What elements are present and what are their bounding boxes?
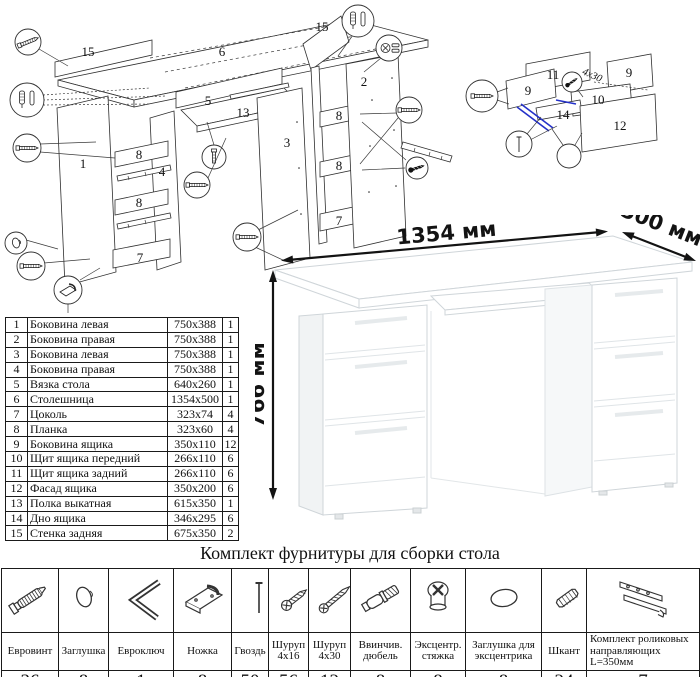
drawer-exploded-group: 11 9 9 10 14 12 4x30 [466,52,657,168]
part-number-label: 8 [336,158,343,173]
part-qty-cell: 6 [223,511,239,526]
part-size-cell: 323x60 [168,422,223,437]
hardware-icon-cell [269,569,309,633]
part-num-cell: 3 [6,347,28,362]
part-size-cell: 346x295 [168,511,223,526]
width-dimension-label: 1354 мм [395,217,497,250]
hardware-name-cell: Шкант [542,633,587,671]
table-row: 7Цоколь323x744 [6,407,239,422]
table-row: 36818505612888247 [2,670,700,677]
hardware-icon-cell [2,569,59,633]
parts-list-table: 1Боковина левая750x38812Боковина правая7… [5,317,239,541]
hardware-name-cell: Эксцентр. стяжка [411,633,466,671]
table-row: 6Столешница1354x5001 [6,392,239,407]
part-size-cell: 750x388 [168,362,223,377]
screw-size-note: 4x30 [580,67,604,86]
table-row: 15Стенка задняя675x3502 [6,526,239,541]
height-dimension-label: 766 мм [255,342,269,427]
hardware-qty-cell: 12 [309,670,351,677]
part-num-cell: 13 [6,496,28,511]
cam-lock-icon [411,614,465,631]
hardware-qty-cell: 7 [587,670,700,677]
part-name-cell: Дно ящика [28,511,168,526]
hardware-kit-table: ЕвровинтЗаглушкаЕвроключНожкаГвоздьШуруп… [1,568,700,677]
part-number-label: 9 [626,65,633,80]
part-num-cell: 10 [6,452,28,467]
part-num-cell: 14 [6,511,28,526]
hardware-icon-cell [542,569,587,633]
part-num-cell: 9 [6,437,28,452]
part-qty-cell: 6 [223,452,239,467]
hardware-name-cell: Ввинчив. дюбель [351,633,411,671]
part-number-label: 11 [547,67,560,82]
part-number-label: 8 [136,147,143,162]
hexkey-icon [114,614,168,631]
part-num-cell: 4 [6,362,28,377]
part-num-cell: 12 [6,481,28,496]
hardware-qty-cell: 36 [2,670,59,677]
part-size-cell: 750x388 [168,332,223,347]
part-qty-cell: 4 [223,407,239,422]
part-size-cell: 750x388 [168,347,223,362]
hardware-name-cell: Заглушка [59,633,109,671]
euroscrew-icon [186,183,208,187]
part-name-cell: Стенка задняя [28,526,168,541]
part-num-cell: 11 [6,466,28,481]
part-number-label: 7 [137,250,144,265]
cam-cap-icon [477,614,531,631]
hardware-icon-cell [174,569,232,633]
part-name-cell: Цоколь [28,407,168,422]
part-number-label: 9 [525,83,532,98]
part-num-cell: 5 [6,377,28,392]
hardware-name-cell: Шуруп 4x16 [269,633,309,671]
hardware-qty-cell: 8 [466,670,542,677]
table-row: 11Щит ящика задний266x1106 [6,466,239,481]
euroscrew-icon [471,94,493,98]
hardware-qty-cell: 8 [351,670,411,677]
part-qty-cell: 2 [223,526,239,541]
table-row: 9Боковина ящика350x11012 [6,437,239,452]
table-row: 10Щит ящика передний266x1106 [6,452,239,467]
part-name-cell: Боковина правая [28,332,168,347]
table-row: 3Боковина левая750x3881 [6,347,239,362]
screw-short-icon [269,614,309,631]
part-name-cell: Боковина ящика [28,437,168,452]
part-qty-cell: 4 [223,422,239,437]
part-qty-cell: 1 [223,362,239,377]
part-size-cell: 350x200 [168,481,223,496]
hardware-qty-cell: 8 [174,670,232,677]
part-qty-cell: 1 [223,496,239,511]
part-name-cell: Боковина левая [28,347,168,362]
hardware-name-cell: Евровинт [2,633,59,671]
part-number-label: 2 [361,74,368,89]
part-qty-cell: 1 [223,377,239,392]
part-number-label: 15 [82,44,95,59]
hardware-icon-cell [587,569,700,633]
table-row: 5Вязка стола640x2601 [6,377,239,392]
table-row: 13Полка выкатная615x3501 [6,496,239,511]
part-size-cell: 323x74 [168,407,223,422]
part-name-cell: Полка выкатная [28,496,168,511]
part-size-cell: 750x388 [168,318,223,333]
hardware-icon-cell [232,569,269,633]
hardware-name-cell: Ножка [174,633,232,671]
part-name-cell: Фасад ящика [28,481,168,496]
hardware-name-cell: Гвоздь [232,633,269,671]
part-size-cell: 675x350 [168,526,223,541]
part-number-label: 1 [80,156,87,171]
part-number-label: 15 [316,19,329,34]
part-size-cell: 266x110 [168,466,223,481]
part-num-cell: 15 [6,526,28,541]
part-size-cell: 615x350 [168,496,223,511]
hardware-qty-cell: 1 [109,670,174,677]
hardware-name-cell: Комплект роликовых направляющих L=350мм [587,633,700,671]
part-num-cell: 8 [6,422,28,437]
part-size-cell: 350x110 [168,437,223,452]
hardware-qty-cell: 8 [59,670,109,677]
part-num-cell: 2 [6,332,28,347]
part-num-cell: 6 [6,392,28,407]
table-row [2,569,700,633]
part-qty-cell: 12 [223,437,239,452]
screw-long-icon [309,614,351,631]
part-qty-cell: 1 [223,318,239,333]
hardware-name-cell: Евроключ [109,633,174,671]
part-name-cell: Боковина левая [28,318,168,333]
table-row: ЕвровинтЗаглушкаЕвроключНожкаГвоздьШуруп… [2,633,700,671]
hardware-qty-cell: 50 [232,670,269,677]
table-row: 12Фасад ящика350x2006 [6,481,239,496]
table-row: 2Боковина правая750x3881 [6,332,239,347]
hardware-qty-cell: 8 [411,670,466,677]
part-name-cell: Щит ящика задний [28,466,168,481]
table-row: 8Планка323x604 [6,422,239,437]
part-qty-cell: 6 [223,481,239,496]
part-size-cell: 640x260 [168,377,223,392]
part-number-label: 3 [284,135,291,150]
euroscrew-icon [3,614,57,631]
part-number-label: 5 [205,93,212,108]
euroscrew-icon [20,264,42,268]
part-num-cell: 1 [6,318,28,333]
assembled-desk-drawing: 1354 мм 500 мм 766 мм [255,215,700,545]
hardware-icon-cell [109,569,174,633]
table-row: 1Боковина левая750x3881 [6,318,239,333]
hardware-icon-cell [309,569,351,633]
dowel-screw-icon [354,614,408,631]
part-name-cell: Столешница [28,392,168,407]
hardware-qty-cell: 24 [542,670,587,677]
part-qty-cell: 1 [223,332,239,347]
hardware-name-cell: Заглушка для эксцентрика [466,633,542,671]
drawer-slide-icon [616,614,670,631]
part-number-label: 14 [557,107,571,122]
table-row: 4Боковина правая750x3881 [6,362,239,377]
part-number-label: 10 [592,92,605,107]
nail-icon [232,614,269,631]
part-qty-cell: 1 [223,392,239,407]
part-number-label: 8 [136,195,143,210]
part-qty-cell: 1 [223,347,239,362]
part-num-cell: 7 [6,407,28,422]
euroscrew-icon [398,108,420,112]
part-number-label: 12 [614,118,627,133]
assembly-instruction-page: 15 6 15 5 13 1 8 4 8 7 3 2 8 8 7 [0,0,700,677]
part-number-label: 4 [159,164,166,179]
hardware-icon-cell [59,569,109,633]
desk-body [275,236,692,519]
hardware-table-body: ЕвровинтЗаглушкаЕвроключНожкаГвоздьШуруп… [2,569,700,677]
hardware-name-cell: Шуруп 4x30 [309,633,351,671]
part-size-cell: 266x110 [168,452,223,467]
hardware-icon-cell [466,569,542,633]
part-name-cell: Щит ящика передний [28,452,168,467]
part-name-cell: Планка [28,422,168,437]
part-qty-cell: 6 [223,466,239,481]
part-name-cell: Вязка стола [28,377,168,392]
hardware-icon-cell [411,569,466,633]
hardware-qty-cell: 56 [269,670,309,677]
cap-icon [59,614,109,631]
part-size-cell: 1354x500 [168,392,223,407]
wood-dowel-icon [542,614,587,631]
part-number-label: 6 [219,44,226,59]
hardware-kit-title: Комплект фурнитуры для сборки стола [0,543,700,564]
part-number-label: 8 [336,108,343,123]
parts-table-body: 1Боковина левая750x38812Боковина правая7… [6,318,239,541]
table-row: 14Дно ящика346x2956 [6,511,239,526]
hardware-icon-cell [351,569,411,633]
part-number-label: 13 [237,105,250,120]
euroscrew-icon [16,146,38,150]
part-name-cell: Боковина правая [28,362,168,377]
leg-icon [176,614,230,631]
